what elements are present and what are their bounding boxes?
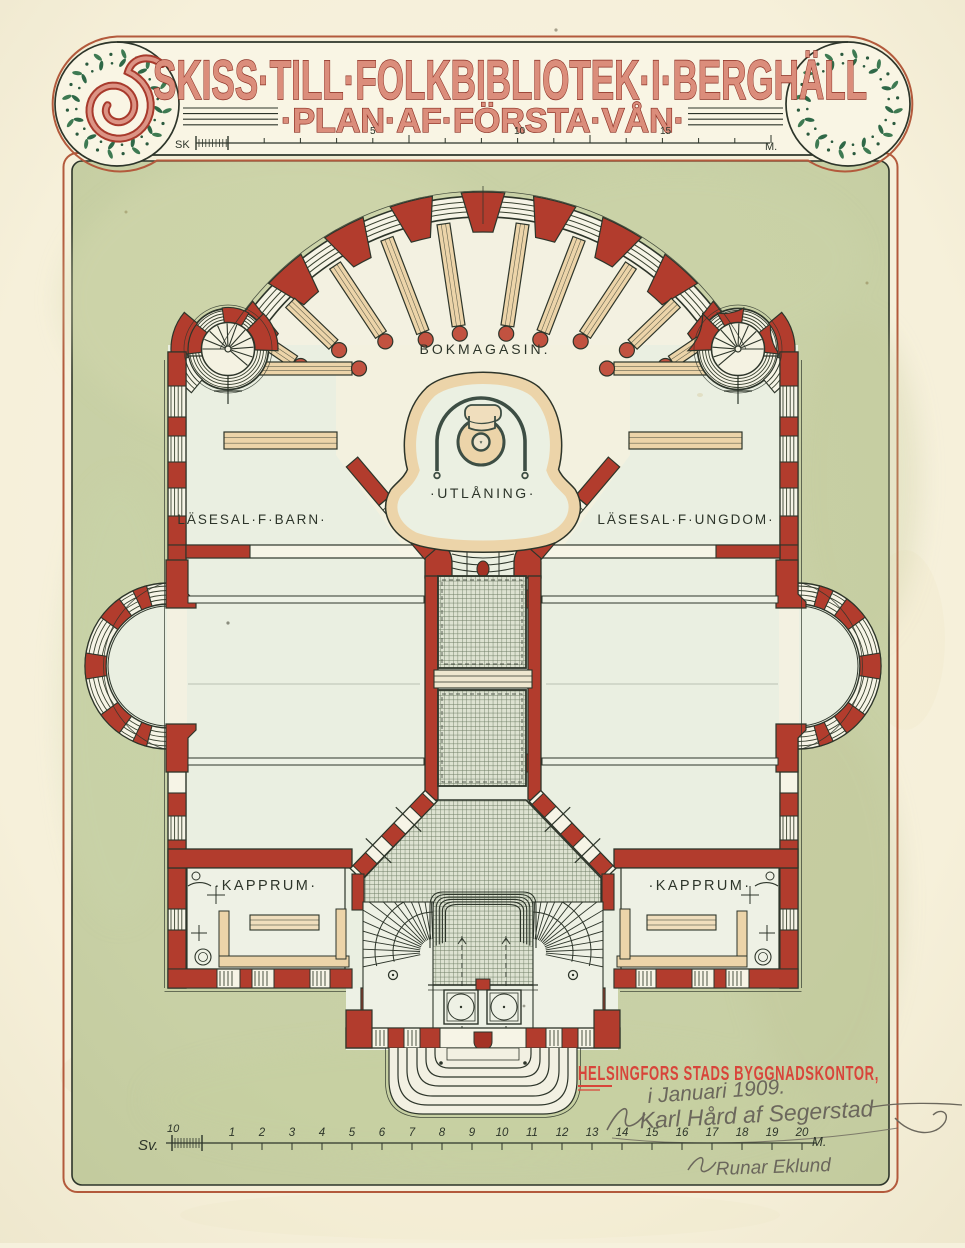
svg-text:10: 10 bbox=[514, 126, 526, 137]
svg-text:·KAPPRUM·: ·KAPPRUM· bbox=[649, 878, 752, 894]
svg-text:15: 15 bbox=[646, 1127, 659, 1139]
svg-text:12: 12 bbox=[556, 1127, 569, 1139]
svg-text:11: 11 bbox=[526, 1127, 538, 1139]
svg-text:M.: M. bbox=[812, 1134, 826, 1149]
svg-text:Runar Eklund: Runar Eklund bbox=[715, 1155, 832, 1180]
svg-text:3: 3 bbox=[289, 1127, 296, 1139]
svg-text:BOKMAGASIN.: BOKMAGASIN. bbox=[419, 341, 550, 357]
svg-text:10: 10 bbox=[167, 1123, 180, 1135]
svg-text:1: 1 bbox=[229, 1127, 235, 1139]
svg-text:13: 13 bbox=[586, 1127, 599, 1139]
svg-text:10: 10 bbox=[496, 1127, 509, 1139]
svg-text:SK: SK bbox=[175, 139, 190, 151]
svg-text:7: 7 bbox=[409, 1127, 416, 1139]
svg-text:19: 19 bbox=[766, 1127, 779, 1139]
svg-text:17: 17 bbox=[706, 1127, 719, 1139]
svg-text:8: 8 bbox=[439, 1127, 446, 1139]
svg-text:Sv.: Sv. bbox=[138, 1137, 159, 1154]
svg-text:16: 16 bbox=[676, 1127, 689, 1139]
svg-text:15: 15 bbox=[660, 126, 672, 137]
svg-text:4: 4 bbox=[319, 1127, 325, 1139]
svg-text:·UTLÅNING·: ·UTLÅNING· bbox=[430, 485, 536, 501]
svg-text:14: 14 bbox=[616, 1127, 629, 1139]
svg-text:5: 5 bbox=[370, 126, 376, 137]
svg-text:2: 2 bbox=[258, 1127, 266, 1139]
svg-text:·PLAN·AF·FÖRSTA·VÅN·: ·PLAN·AF·FÖRSTA·VÅN· bbox=[281, 102, 685, 140]
svg-text:·KAPPRUM·: ·KAPPRUM· bbox=[215, 878, 318, 894]
svg-text:5: 5 bbox=[349, 1127, 356, 1139]
svg-text:6: 6 bbox=[379, 1127, 386, 1139]
svg-text:LÄSESAL·F·BARN·: LÄSESAL·F·BARN· bbox=[177, 512, 326, 527]
svg-text:20: 20 bbox=[795, 1127, 809, 1139]
svg-text:LÄSESAL·F·UNGDOM·: LÄSESAL·F·UNGDOM· bbox=[597, 512, 774, 527]
svg-text:M.: M. bbox=[765, 141, 777, 153]
svg-text:18: 18 bbox=[736, 1127, 749, 1139]
svg-text:9: 9 bbox=[469, 1127, 476, 1139]
